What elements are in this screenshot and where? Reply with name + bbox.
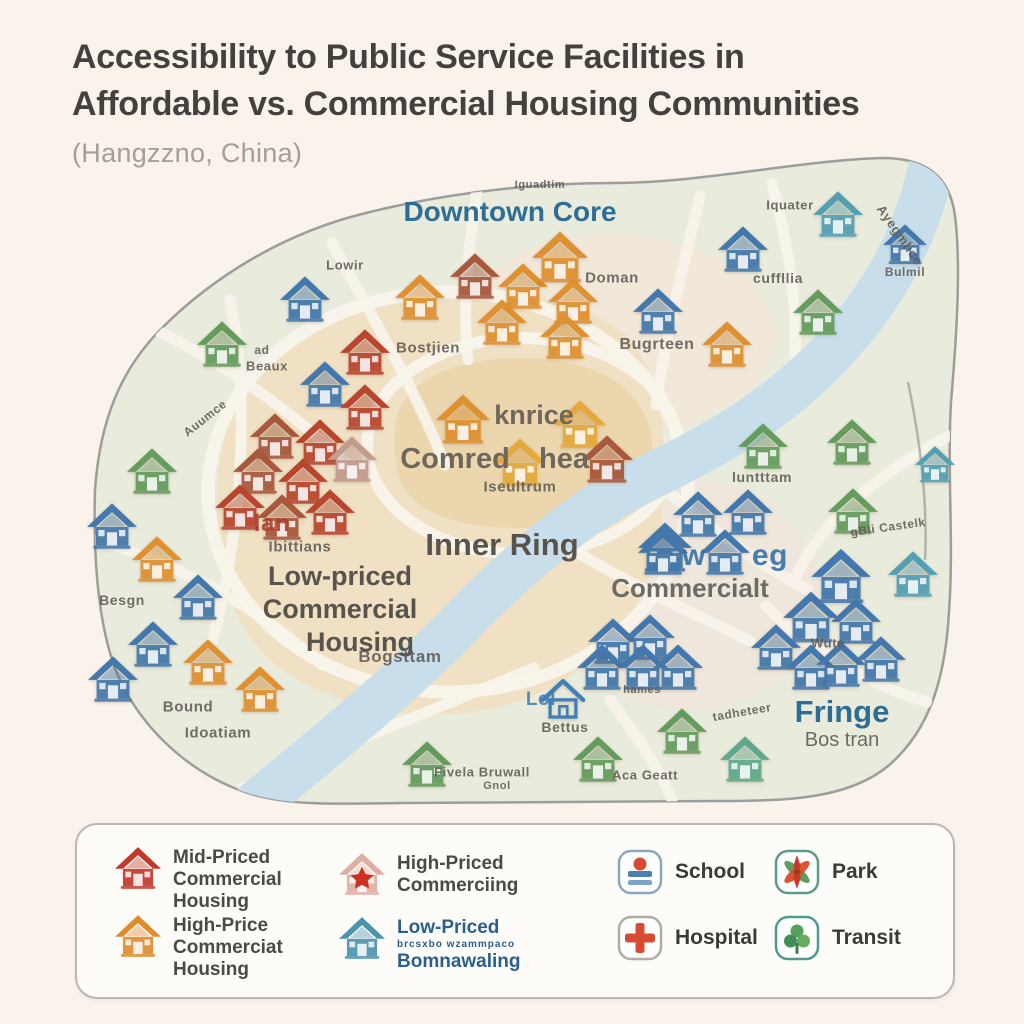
label-low-priced-line2: Commercial [263,594,418,624]
school-icon [617,849,663,895]
legend-label: High-Price Commerciat Housing [173,913,283,981]
house-icon [888,551,938,598]
map-label: luntttam [732,469,792,485]
park-icon [774,849,820,895]
house-icon [197,321,247,368]
legend-label: Low-Priced brcsxbo wzammpaco Bomnawaling [397,915,521,973]
house-icon [127,448,177,495]
map-label: Wute [811,636,845,651]
label-fringe: Fringe [795,694,890,730]
house-icon [540,313,590,360]
map-label: Bound [163,699,213,716]
legend: Mid-Priced Commercial Housing High-Price… [75,823,955,999]
transit-icon [774,915,820,961]
map-label: Bettus [541,719,588,735]
label-downtown-core: Downtown Core [403,196,616,228]
house-icon [738,423,788,470]
high-priced-house-icon [339,851,385,897]
house-icon [638,529,688,576]
map-label: tadheteer [712,700,773,724]
label-low-priced-housing: Low-priced Commercial Housing [263,560,418,659]
legend-text-line: Bomnawaling [397,951,521,973]
legend-item-mid-priced: Mid-Priced Commercial Housing [115,845,282,913]
mid-priced-house-icon [115,845,161,891]
label-low-priced-line3: Housing [266,627,414,657]
map-label: Lowir [326,258,364,273]
legend-text-line: brcsxbo wzammpaco [397,939,521,951]
map-label: Besgn [99,592,145,608]
legend-text-line: High-Priced [397,853,518,875]
map-label: Auumce [181,397,230,439]
house-icon [88,656,138,703]
house-icon [657,708,707,755]
map-label: Aca Geatt [612,768,678,783]
page-subtitle: (Hangzzno, China) [72,138,302,169]
legend-label: High-Priced Commerciing [397,851,518,897]
legend-text-line: Housing [173,891,282,913]
label-core-1: knrice [494,400,574,431]
legend-item-low-priced: Low-Priced brcsxbo wzammpaco Bomnawaling [339,915,521,973]
house-icon [720,736,770,783]
map-label: Beaux [246,359,288,374]
map-label: lan [254,510,290,538]
house-icon [718,226,768,273]
legend-label: Mid-Priced Commercial Housing [173,845,282,913]
title-line2: Affordable vs. Commercial Housing Commun… [72,85,860,123]
house-icon [340,384,390,431]
house-icon [532,230,588,283]
hospital-icon [617,915,663,961]
legend-text-line: Commerciat [173,937,283,959]
map-label: Bugrteen [619,336,694,354]
legend-label: Transit [832,915,901,961]
house-icon [183,639,233,686]
map-label: Iseultrum [484,479,557,496]
high-price-house-icon [115,913,161,959]
map-label: Fivela Bruwall [434,765,530,780]
label-core-2: Comred [400,443,510,476]
legend-text-line: Housing [173,959,283,981]
label-commercial: Commercialt [611,573,769,604]
legend-text-line: Mid-Priced [173,847,282,869]
label-core-3: hea [539,443,589,476]
house-icon [395,274,445,321]
map-label: Ibittians [269,539,332,556]
title-line1: Accessibility to Public Service Faciliti… [72,38,744,76]
house-icon [700,529,750,576]
house-icon [305,489,355,536]
map-label: w [682,539,706,573]
house-icon [633,288,683,335]
map-label: Bostjien [396,340,460,357]
label-fringe-sub: Bos tran [805,729,879,752]
house-icon [280,276,330,323]
legend-label: Park [832,849,878,895]
house-icon [235,666,285,713]
legend-item-high-price-housing: High-Price Commerciat Housing [115,913,283,981]
house-icon [915,445,955,483]
map-label: cuffllia [753,270,803,286]
legend-text-line: Commerciing [397,875,518,897]
legend-item-hospital: Hospital [617,915,758,961]
label-low-priced-line1: Low-priced [268,561,412,591]
house-icon [173,574,223,621]
legend-text-line: Commercial [173,869,282,891]
house-icon [856,636,906,683]
map-label: ad [254,343,269,357]
legend-item-school: School [617,849,745,895]
house-icon [327,436,377,483]
house-icon [477,299,527,346]
map-label: eg [752,539,788,573]
map-label: Gnol [483,780,510,792]
legend-item-transit: Transit [774,915,901,961]
legend-label: School [675,849,745,895]
house-icon [813,191,863,238]
label-inner-ring: Inner Ring [425,527,578,563]
house-icon [87,503,137,550]
map-label: hames [623,684,661,696]
map-label: Iquater [766,198,814,213]
map-label: Bulmil [885,265,925,279]
house-icon [793,289,843,336]
map-label: Iguadtim [515,179,566,191]
legend-item-park: Park [774,849,878,895]
map-label: Doman [585,270,639,287]
house-icon [436,393,490,444]
low-priced-house-icon [339,915,385,961]
page-title: Accessibility to Public Service Faciliti… [72,34,972,128]
map-label: Lol [526,689,556,711]
house-icon [450,253,500,300]
house-icon [827,419,877,466]
legend-text-line: High-Price [173,915,283,937]
legend-text-line: Low-Priced [397,917,521,939]
legend-label: Hospital [675,915,758,961]
house-icon [702,321,752,368]
legend-item-high-priced-commercing: High-Priced Commerciing [339,851,518,897]
map-label: Idoatiam [185,725,251,742]
